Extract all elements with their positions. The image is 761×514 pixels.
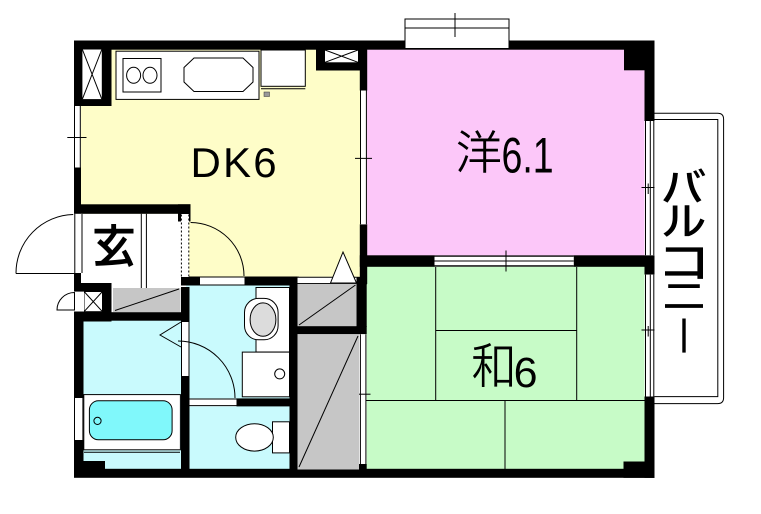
svg-text:DK6: DK6 — [191, 139, 279, 186]
svg-text:6: 6 — [514, 349, 538, 397]
svg-text:6.1: 6.1 — [502, 128, 554, 183]
